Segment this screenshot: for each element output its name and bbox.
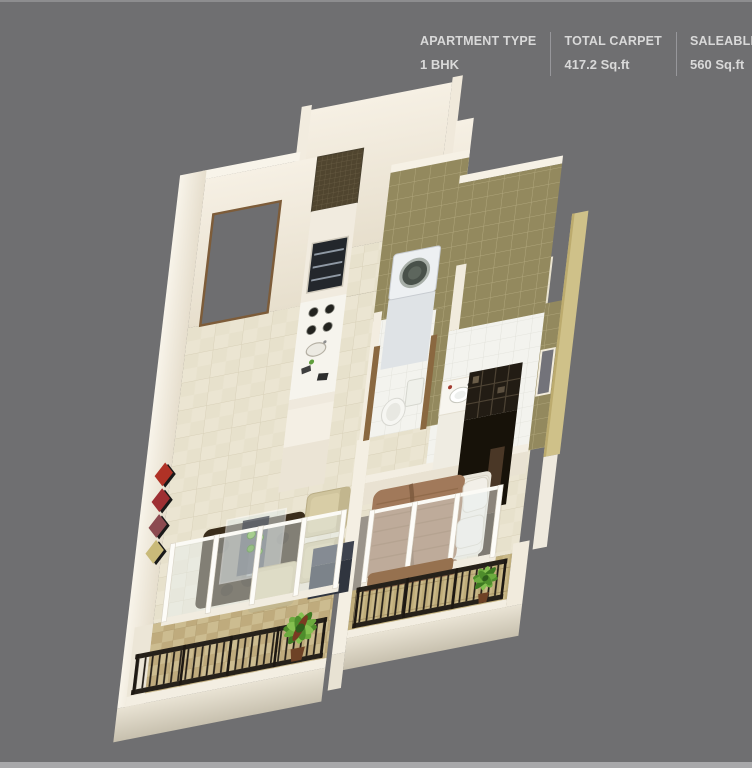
oven (307, 236, 349, 293)
kitchen-mosaic-hood (311, 148, 363, 212)
floor-plan-render (0, 0, 752, 768)
balcony-divider-face (328, 652, 345, 690)
washer-face (380, 291, 435, 370)
bedroom-east-wall (533, 454, 558, 549)
bottom-edge-strip (0, 762, 752, 768)
page: APARTMENT TYPE 1 BHK TOTAL CARPET 417.2 … (0, 0, 752, 768)
